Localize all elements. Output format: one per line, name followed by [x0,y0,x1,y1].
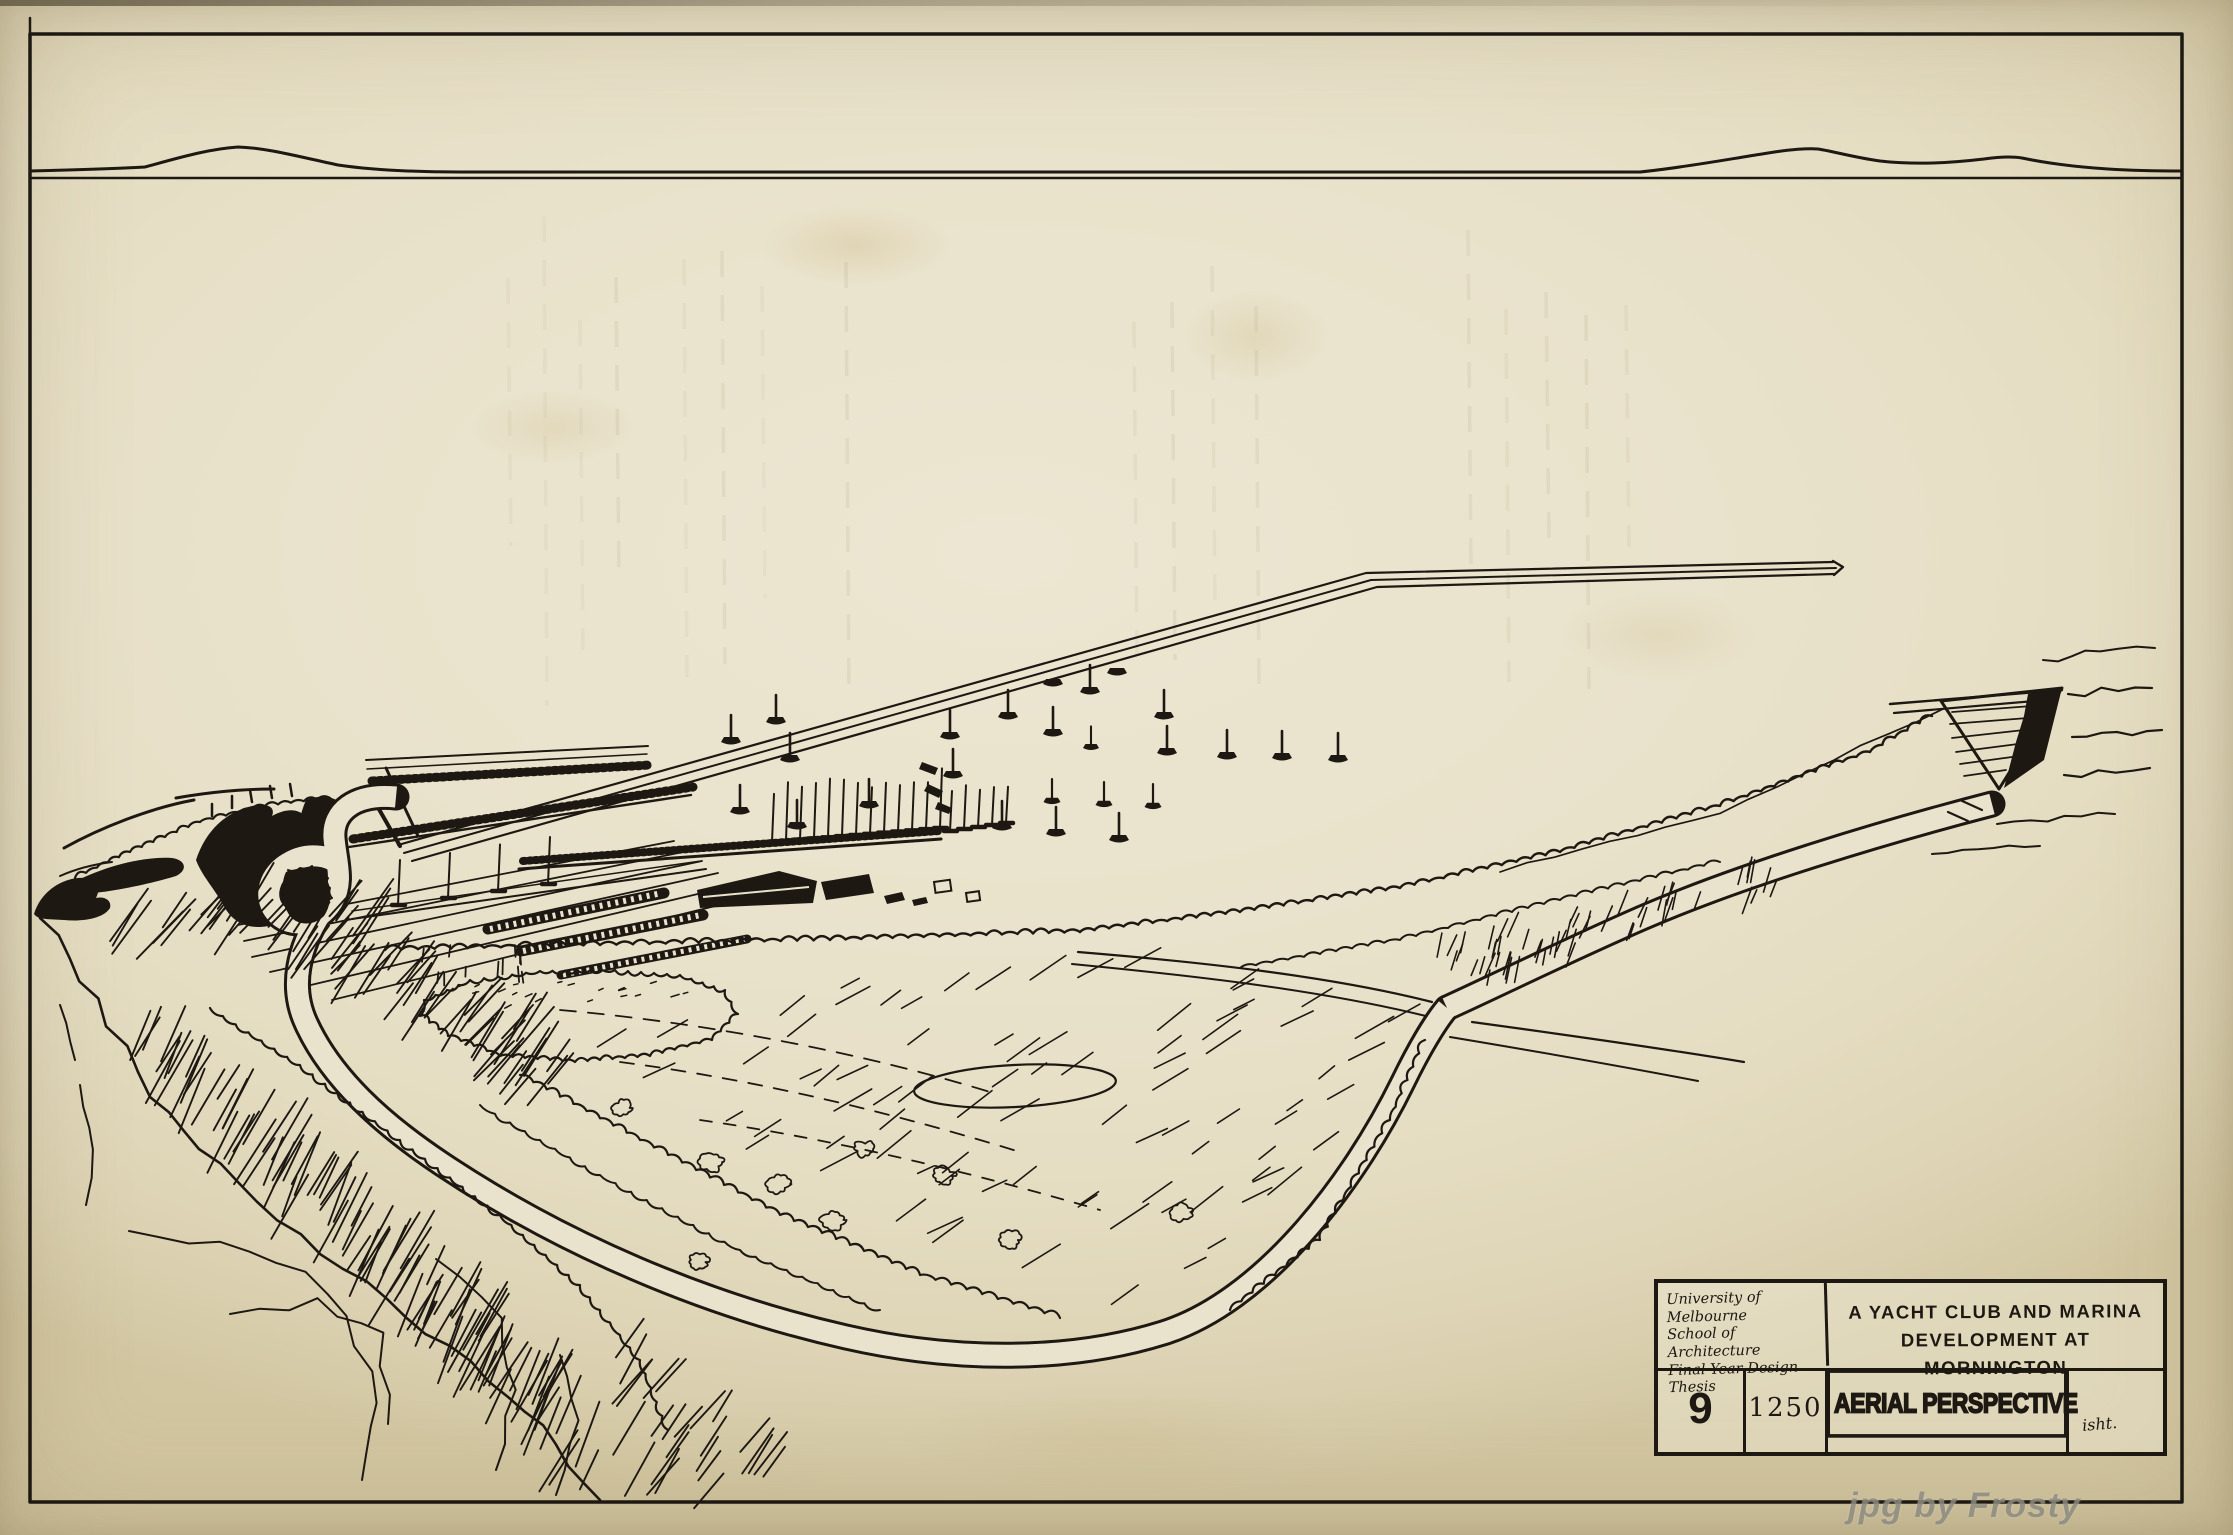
mast-rows [392,768,1013,905]
park-trees [611,1099,1193,1270]
institution-line: University of Melbourne [1666,1288,1821,1328]
sailboat-icon [1096,782,1113,807]
sailboat-icon [1272,731,1292,761]
moored-hull [1107,668,1127,676]
sailboat-icon [766,695,786,725]
cliff-hatching [110,863,787,1508]
signature: isht. [2066,1367,2167,1456]
ghost-bleed-marks [508,216,1629,706]
sailboat-icon [730,785,750,815]
distant-hills-outline [30,147,2182,172]
sailboat-icon [721,715,741,745]
sailboat-icon [1328,733,1348,763]
title-block: University of Melbourne School of Archit… [1654,1279,2167,1456]
sailboat-icon [943,749,963,779]
sailboat-icon [1044,779,1061,804]
sailboat-icon [1217,730,1237,760]
jetty-moored-boats [372,765,650,781]
project-title-cell: A YACHT CLUB AND MARINA DEVELOPMENT AT M… [1828,1282,2163,1369]
breakwater-group [368,561,1843,861]
watermark-text: jpg by Frosty [1848,1486,2081,1526]
institution-cell: University of Melbourne School of Archit… [1657,1281,1829,1371]
sailboat-icon [859,779,879,809]
sailboat-icon [940,710,960,740]
sailboat-icon [1154,690,1174,720]
drawing-title: AERIAL PERSPECTIVE [1827,1369,2067,1437]
institution-line: Final Year Design Thesis [1668,1359,1823,1399]
clubhouse-buildings [697,871,980,908]
sailboat-icon [1109,813,1129,843]
sailboat-icon [1083,726,1099,750]
horizon-group [30,147,2182,178]
scanned-drawing-sheet: { "title_block": { "institution": ["Univ… [0,0,2233,1535]
moored-boat-cluster [919,762,952,814]
project-title-line: A YACHT CLUB AND MARINA [1828,1297,2163,1327]
moored-hull [1043,679,1063,687]
sailboat-icon [1046,807,1066,837]
sailboat-icon [1043,707,1063,737]
park-pond [913,1060,1117,1113]
drawing-title-cell: AERIAL PERSPECTIVE [1828,1371,2069,1452]
park-group [560,1010,1117,1210]
institution-line: School of Architecture [1667,1323,1822,1363]
sailboat-icon [1157,726,1177,756]
sailboat-icon [787,800,807,830]
sailboat-icon [1145,784,1162,809]
